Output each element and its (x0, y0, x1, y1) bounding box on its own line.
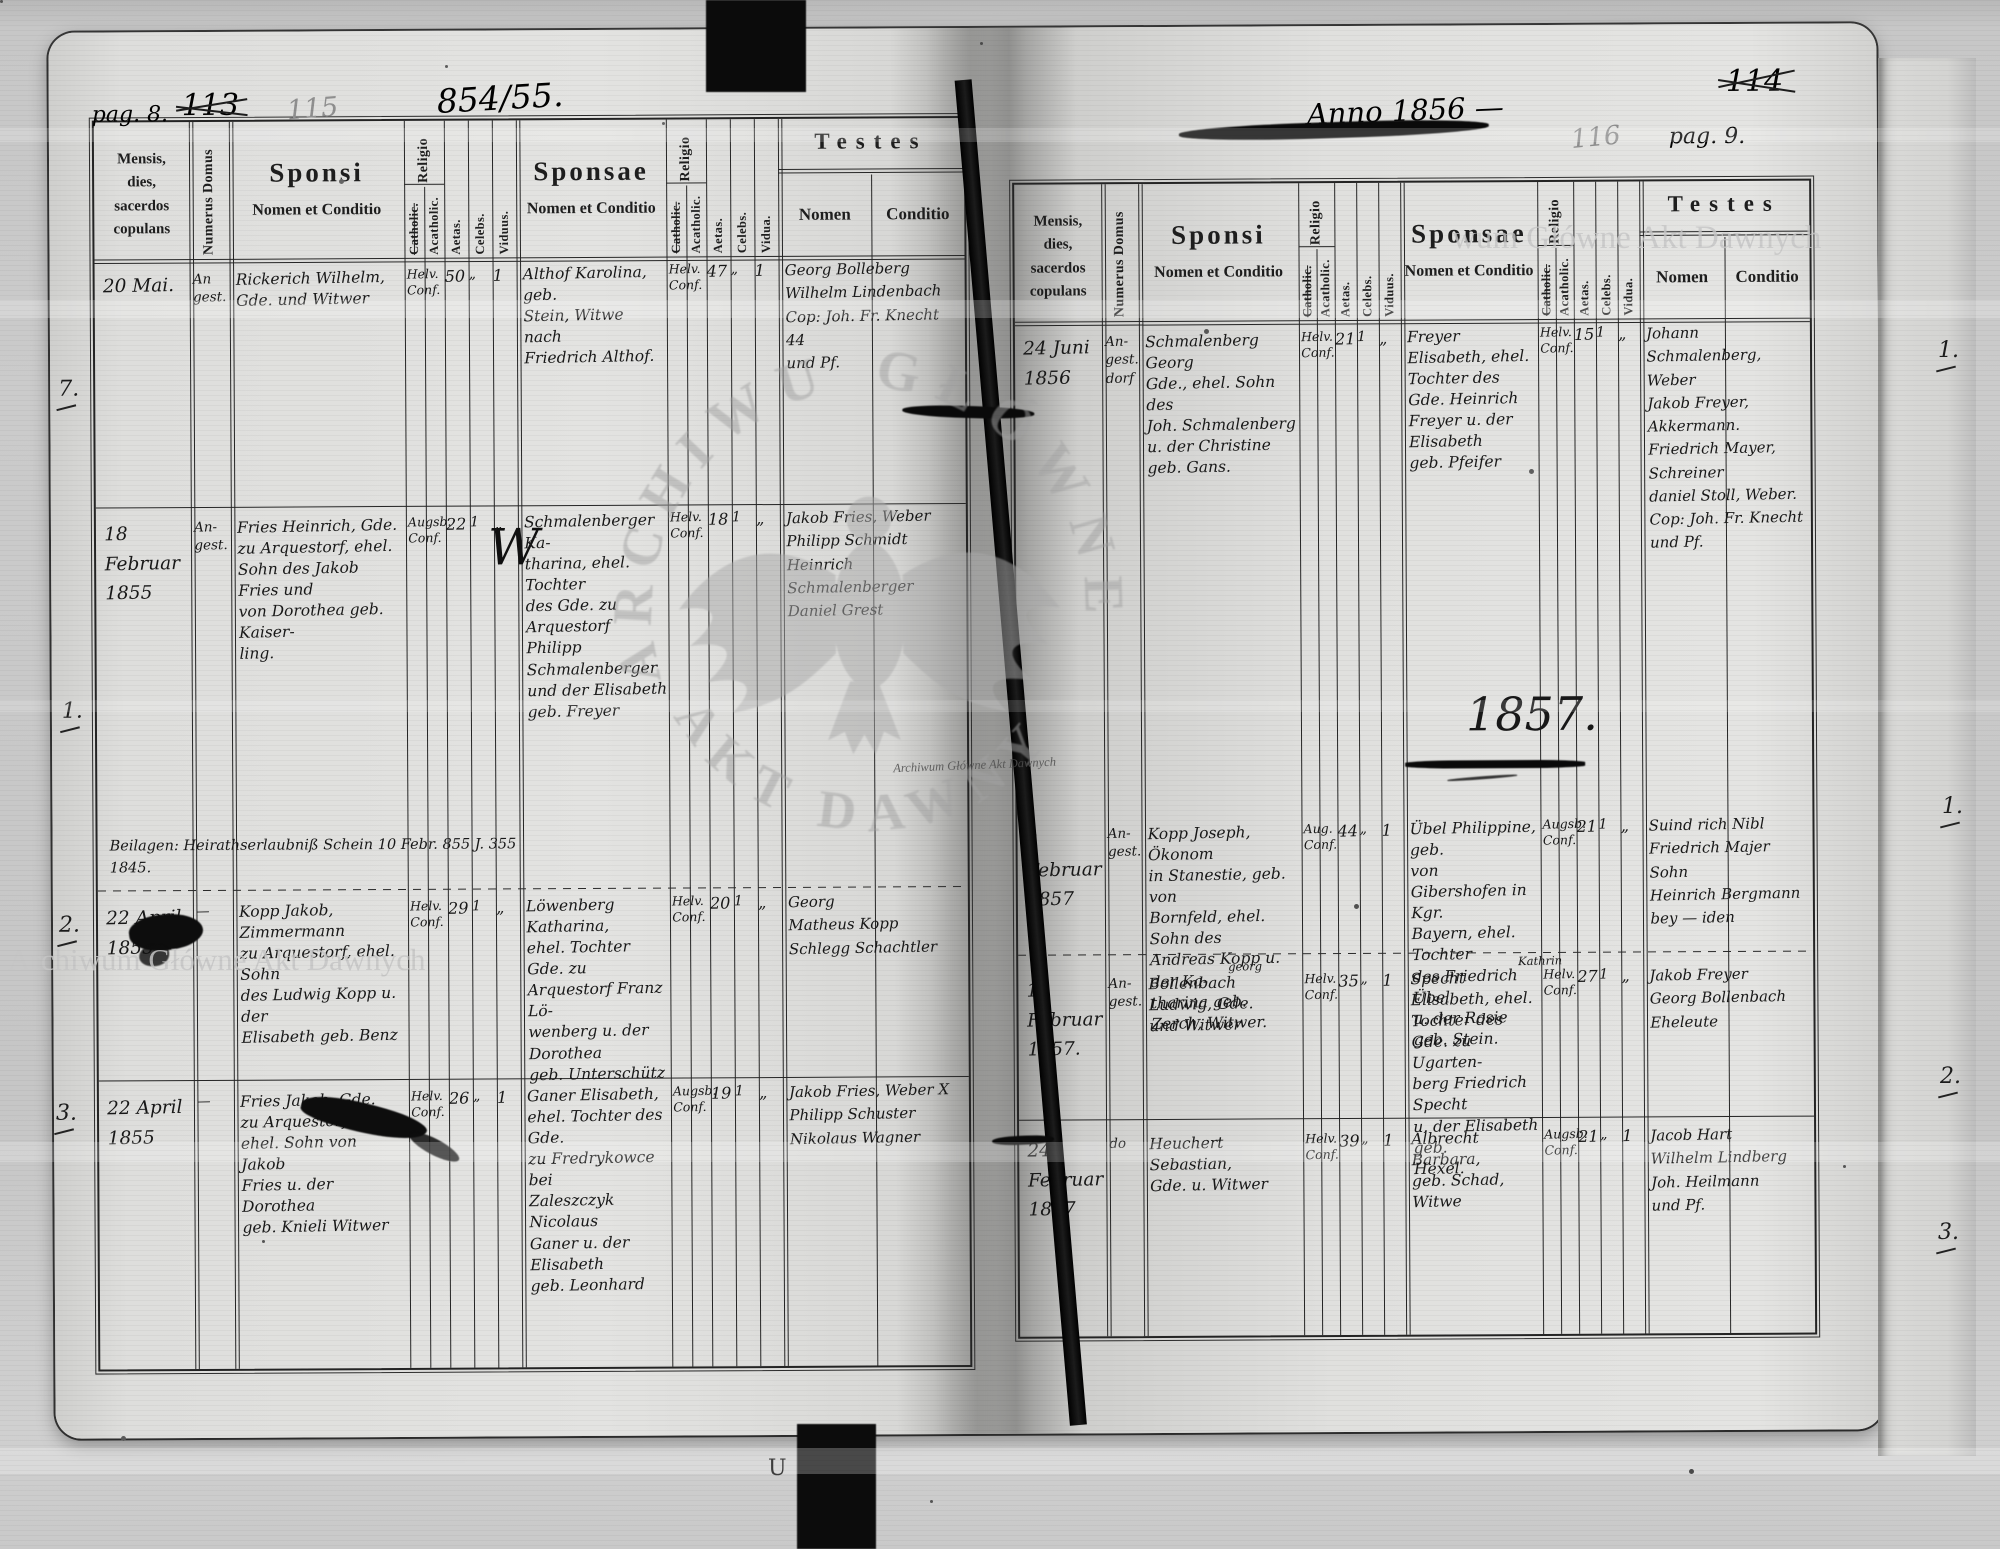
cell-date: 22 April 1855 (107, 1093, 191, 1154)
cell-religio-sponsae: Helv. Conf. (668, 261, 706, 294)
cell-aetas-sponsae: 27 (1577, 966, 1599, 988)
col-header-numerus-domus: Numerus Domus (189, 127, 230, 255)
cell-vidua-sponsae: 1 (1622, 1125, 1644, 1147)
cell-vidua-sponsae: „ (1620, 815, 1642, 837)
cell-aetas-sponsi: 35 (1338, 970, 1360, 992)
margin-row-number: 1. (62, 699, 83, 724)
cell-celebs-sponsae: „ (730, 260, 754, 279)
margin-row-number: 1. (1942, 794, 1963, 819)
col-header-sponsi-sub: Nomen et Conditio (1139, 263, 1299, 282)
scan-streak (0, 1448, 2000, 1474)
col-header-testes: Testes (778, 128, 964, 155)
col-header-celebs: Celebs. (468, 190, 492, 254)
ink-smear (1179, 117, 1489, 143)
cell-celebs-sponsae: 1 (732, 508, 756, 527)
col-header-mensis: Mensis, dies, sacerdos copulans (94, 148, 189, 241)
pen-mark: U (768, 1456, 787, 1481)
cell-religio-sponsae: Augsb. Conf. (1544, 1126, 1578, 1159)
cell-numerus: An gest. (193, 270, 228, 307)
testes-rule (778, 168, 964, 170)
col-header-nomen: Nomen (1640, 267, 1725, 287)
register-book: pag. 8. 113 115 854/55. Anno 1856 — 114 … (48, 23, 1883, 1439)
cell-numerus: An- gest. dorf (1105, 332, 1137, 388)
col-header-religio: Religio (666, 121, 706, 181)
register-table-right: Mensis, dies, sacerdos copulans Numerus … (1012, 179, 1817, 1339)
binding-ribbon-bottom (797, 1424, 876, 1549)
col-header-mensis: Mensis, dies, sacerdos copulans (1014, 210, 1101, 303)
ink-folio-number: 854/55. (436, 75, 565, 121)
cell-aetas-sponsi: 50 (445, 265, 469, 287)
cell-numerus: An- gest. (1107, 824, 1139, 861)
table-column-line (730, 119, 738, 1366)
cell-aetas-sponsae: 21 (1576, 816, 1598, 838)
cell-testes: Suind rich Nibl Friedrich Majer Sohn Hei… (1648, 812, 1810, 931)
scanned-register-page: pag. 8. 113 115 854/55. Anno 1856 — 114 … (0, 0, 2000, 1549)
page-number-note: pag. 9. (1669, 124, 1745, 149)
cell-numerus: — (196, 902, 230, 921)
cell-religio-sponsi: Helv. Conf. (410, 898, 448, 931)
cell-date: 18 Februar 1855 (104, 519, 189, 609)
col-header-religio: Religio (1537, 184, 1573, 244)
cell-testes: Georg Bolleberg Wilhelm Lindenbach Cop: … (784, 256, 962, 376)
table-column-line (468, 121, 476, 1368)
cell-sponsi: Heuchert Sebastian, Gde. u. Witwer (1149, 1131, 1300, 1197)
col-header-sponsae: Sponsae (1400, 218, 1537, 250)
cell-vidua-sponsae: „ (759, 1081, 783, 1103)
cell-religio-sponsae: Helv. Conf. (1543, 966, 1577, 999)
col-header-vidua: Vidua. (754, 189, 778, 253)
cell-aetas-sponsi: 29 (448, 897, 472, 919)
table-column-line (754, 119, 762, 1366)
register-row: 8 Februar 1857 An- gest. Kopp Joseph, Ök… (1018, 811, 1813, 826)
col-header-catholic: Catholic. (1299, 253, 1317, 317)
cell-sponsae: Schmalenberger Ka- tharina, ehel. Tochte… (524, 510, 668, 723)
book-fore-edge (1878, 58, 1976, 1456)
cell-religio-sponsi: Helv. Conf. (1304, 971, 1338, 1004)
cell-numerus: do (1109, 1134, 1140, 1153)
dust-specks (0, 0, 3, 3)
cell-testes: Johann Schmalenberg, Weber Jakob Freyer,… (1646, 320, 1810, 556)
cell-sponsae: Ganer Elisabeth, ehel. Tochter des Gde. … (527, 1084, 671, 1297)
col-header-aetas: Aetas. (1335, 253, 1357, 317)
col-header-celebs: Celebs. (1595, 252, 1617, 316)
cell-sponsae: Löwenberg Katharina, ehel. Tochter Gde. … (526, 894, 670, 1086)
cell-vidua-sponsae: „ (1618, 323, 1640, 345)
cell-sponsi: Kopp Jakob, Zimmermann zu Arquestorf, eh… (239, 899, 407, 1050)
table-column-line (706, 119, 714, 1366)
cell-date: 24 Juni 1856 (1023, 333, 1099, 394)
col-header-catholic: Catholic. (404, 191, 424, 255)
col-header-religio: Religio (1298, 185, 1334, 245)
col-header-viduus: Viduus. (1379, 253, 1401, 317)
cell-aetas-sponsae: 18 (708, 508, 732, 530)
cell-celebs-sponsae: 1 (1599, 965, 1621, 984)
col-header-acatholic: Acatholic. (1317, 253, 1335, 317)
table-column-line (1316, 249, 1323, 1335)
col-header-testes: Testes (1639, 191, 1809, 218)
religio-rule (1537, 245, 1573, 247)
cell-religio-sponsi: Helv. Conf. (411, 1088, 449, 1121)
cell-religio-sponsae: Helv. Conf. (672, 893, 710, 926)
table-column-line (492, 120, 500, 1367)
religio-rule (666, 182, 706, 184)
cell-viduus-sponsi: 1 (1382, 969, 1404, 991)
col-header-nomen: Nomen (778, 204, 871, 224)
cell-religio-sponsae: Augsb. Conf. (1542, 816, 1576, 849)
cell-sponsae: Freyer Elisabeth, ehel. Tochter des Gde.… (1407, 325, 1537, 475)
col-header-sponsae-sub: Nomen et Conditio (516, 200, 666, 219)
col-header-religio: Religio (404, 123, 444, 183)
margin-row-number: 3. (1938, 1220, 1959, 1245)
cell-aetas-sponsae: 20 (710, 892, 734, 914)
cell-celebs-sponsi: „ (1360, 970, 1382, 989)
margin-row-number: 1. (1938, 338, 1959, 363)
cell-testes: Jakob Fries, Weber X Philipp Schuster Ni… (789, 1078, 966, 1151)
cell-aetas-sponsae: 21 (1578, 1126, 1600, 1148)
col-header-acatholic: Acatholic. (424, 191, 444, 255)
cell-aetas-sponsi: 22 (446, 513, 470, 535)
pencil-folio-number: 115 (286, 92, 340, 127)
ink-underline (1405, 760, 1585, 769)
table-column-line (1555, 248, 1562, 1334)
cell-celebs-sponsi: 1 (472, 897, 496, 916)
page-number-note: pag. 8. (92, 102, 168, 127)
col-header-aetas: Aetas. (1573, 252, 1595, 316)
cell-aetas-sponsi: 26 (449, 1087, 473, 1109)
cell-aetas-sponsae: 15 (1574, 324, 1596, 346)
cell-religio-sponsi: Helv. Conf. (1301, 329, 1335, 362)
col-header-acatholic: Acatholic. (1555, 252, 1573, 316)
col-header-sponsae-sub: Nomen et Conditio (1401, 262, 1538, 281)
cell-aetas-sponsi: 21 (1335, 328, 1357, 350)
cell-religio-sponsi: Helv. Conf. (407, 266, 445, 299)
cell-celebs-sponsae: 1 (735, 1082, 759, 1101)
cell-viduus-sponsi: „ (494, 512, 518, 534)
testes-rule (1639, 231, 1809, 233)
col-header-catholic: Catholic. (1537, 252, 1555, 316)
religio-rule (1298, 246, 1334, 248)
table-column-line (686, 185, 694, 1366)
cell-religio-sponsi: Augsb. Conf. (408, 514, 446, 547)
cell-sponsi: Fries Heinrich, Gde. zu Arquestorf, ehel… (237, 515, 405, 666)
table-column-line (1617, 182, 1624, 1334)
cell-celebs-sponsi: 1 (470, 513, 494, 532)
col-header-sponsi: Sponsi (229, 157, 404, 189)
col-header-conditio: Conditio (871, 204, 964, 224)
table-column-line (189, 122, 197, 1369)
cell-sponsi: Rickerich Wilhelm, Gde. und Witwer (236, 267, 402, 312)
col-header-aetas: Aetas. (444, 191, 468, 255)
cell-celebs-sponsi: „ (1361, 1130, 1383, 1149)
old-folio-number-crossed: 114 (1726, 64, 1783, 99)
year-heading-1857: 1857. (1457, 687, 1607, 742)
cell-numerus: An- gest. (1108, 974, 1140, 1011)
cell-aetas-sponsae: 19 (711, 1082, 735, 1104)
cell-testes: Georg Matheus Kopp Schlegg Schachtler (788, 888, 965, 961)
register-table-left: Mensis, dies, sacerdos copulans Numerus … (92, 116, 973, 1372)
old-folio-number-crossed: 113 (182, 88, 239, 123)
col-header-acatholic: Acatholic. (686, 189, 706, 253)
cell-numerus: — (197, 1092, 231, 1111)
pencil-folio-number: 116 (1570, 120, 1622, 154)
cell-sponsae: Albrecht Barbara, geb. Schad, Witwe (1411, 1127, 1540, 1214)
col-header-celebs: Celebs. (1357, 253, 1379, 317)
cell-vidua-sponsae: „ (758, 891, 782, 913)
cell-celebs-sponsae: 1 (1598, 815, 1620, 834)
ink-flourish-line (1447, 774, 1517, 782)
cell-viduus-sponsi: 1 (1381, 819, 1403, 841)
cell-religio-sponsi: Helv. Conf. (1305, 1131, 1339, 1164)
cell-viduus-sponsi: „ (1379, 327, 1401, 349)
col-header-celebs: Celebs. (730, 189, 754, 253)
cell-celebs-sponsi: „ (469, 265, 493, 284)
cell-viduus-sponsi: 1 (497, 1086, 521, 1108)
cell-testes: Jakob Fries, Weber Philipp Schmidt Heinr… (786, 504, 964, 624)
col-header-sponsi: Sponsi (1138, 219, 1298, 251)
beilagen-note: Beilagen: Heirathserlaubniß Schein 10 Fe… (110, 834, 670, 880)
cell-viduus-sponsi: 1 (493, 264, 517, 286)
cell-date: 20 Mai. (103, 271, 187, 302)
col-header-conditio: Conditio (1725, 267, 1810, 287)
cell-testes: Jacob Hart Wilhelm Lindberg Joh. Heilman… (1650, 1122, 1812, 1218)
margin-row-number: 3. (56, 1101, 77, 1126)
margin-row-number: 2. (1940, 1064, 1961, 1089)
cell-religio-sponsi: Aug. Conf. (1303, 821, 1337, 854)
cell-aetas-sponsae: 47 (706, 260, 730, 282)
cell-celebs-sponsae: 1 (734, 892, 758, 911)
col-header-sponsae: Sponsae (516, 156, 666, 188)
cell-aetas-sponsi: 39 (1339, 1130, 1361, 1152)
margin-row-number: 7. (58, 377, 79, 402)
col-header-numerus-domus: Numerus Domus (1101, 189, 1139, 317)
col-header-aetas: Aetas. (706, 189, 730, 253)
cell-testes: Jakob Freyer Georg Bollenbach Eheleute (1649, 962, 1810, 1035)
cell-religio-sponsae: Augsb. Conf. (673, 1083, 711, 1116)
binding-ribbon-top (706, 0, 806, 92)
cell-celebs-sponsae: 1 (1596, 323, 1618, 342)
table-column-line (424, 187, 432, 1368)
table-column-line (1356, 183, 1363, 1335)
cell-vidua-sponsae: 1 (754, 259, 778, 281)
cell-numerus: An- gest. (194, 518, 229, 555)
cell-celebs-sponsi: 1 (1357, 328, 1379, 347)
cell-vidua-sponsae: „ (756, 507, 780, 529)
cell-celebs-sponsi: „ (473, 1087, 497, 1106)
cell-religio-sponsae: Helv. Conf. (670, 509, 708, 542)
cell-religio-sponsae: Helv. Conf. (1540, 324, 1574, 357)
col-header-sponsi-sub: Nomen et Conditio (229, 201, 404, 220)
cell-sponsi: Bollenbach Ludwig, Gde. und Witwer (1148, 971, 1299, 1037)
cell-sponsae: Althof Karolina, geb. Stein, Witwe nach … (523, 262, 665, 370)
table-column-line (1573, 182, 1580, 1334)
margin-row-number: 2. (59, 913, 80, 938)
table-column-line (1595, 182, 1602, 1334)
table-column-line (444, 121, 452, 1368)
cell-celebs-sponsae: „ (1600, 1125, 1622, 1144)
col-header-catholic: Catholic. (666, 189, 686, 253)
cell-vidua-sponsae: „ (1621, 965, 1643, 987)
cell-celebs-sponsi: „ (1359, 820, 1381, 839)
cell-aetas-sponsi: 44 (1337, 820, 1359, 842)
col-header-vidua: Vidua. (1617, 251, 1639, 315)
cell-viduus-sponsi: 1 (1383, 1129, 1405, 1151)
cell-viduus-sponsi: „ (496, 896, 520, 918)
cell-sponsi: Schmalenberg Georg Gde., ehel. Sohn des … (1145, 329, 1298, 479)
table-column-line (1378, 183, 1385, 1335)
col-header-viduus: Viduus. (492, 190, 516, 254)
religio-rule (404, 184, 444, 186)
